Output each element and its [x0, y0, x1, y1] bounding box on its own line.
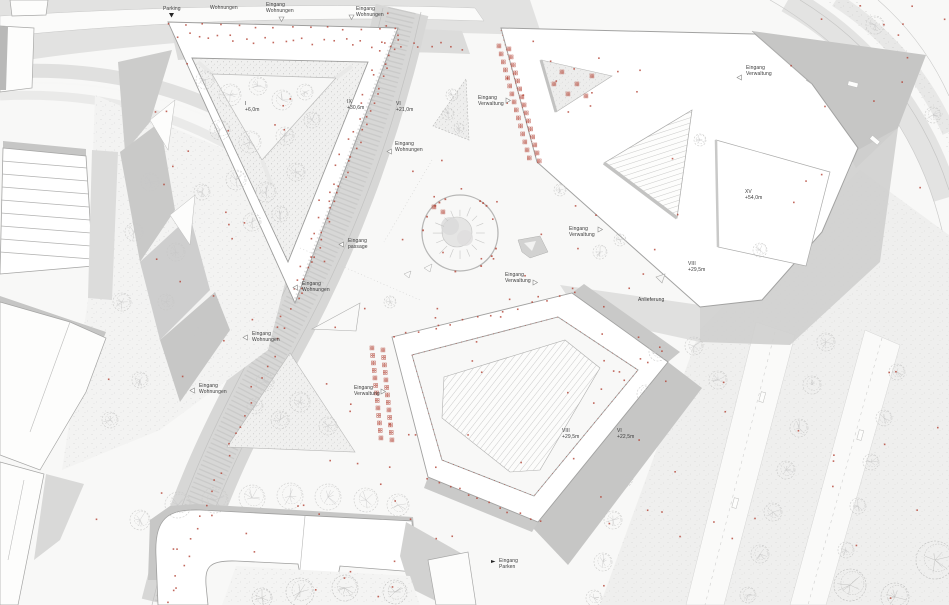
window-symbol [390, 438, 394, 442]
red-dot [598, 57, 600, 59]
red-dot [379, 28, 381, 30]
window-symbol [523, 140, 527, 144]
red-dot [619, 371, 621, 373]
red-dot [280, 316, 282, 318]
red-dot [156, 258, 158, 260]
red-dot [394, 500, 396, 502]
red-dot [590, 105, 592, 107]
red-dot [890, 597, 892, 599]
tree-icon [354, 488, 378, 512]
red-dot [301, 37, 303, 39]
red-dot [603, 360, 605, 362]
window-symbol [372, 361, 376, 365]
red-dot [480, 265, 482, 267]
red-dot [444, 198, 446, 200]
red-dot [329, 460, 331, 462]
red-dot [541, 234, 543, 236]
red-dot [264, 37, 266, 39]
red-dot [661, 350, 663, 352]
red-dot [493, 258, 495, 260]
red-dot [435, 538, 437, 540]
red-dot [394, 49, 396, 51]
red-dot [303, 504, 305, 506]
red-dot [283, 129, 285, 131]
entrance-marker-icon [491, 560, 496, 567]
red-dot [274, 356, 276, 358]
red-dot [390, 46, 392, 48]
red-dot [286, 41, 288, 43]
red-dot [221, 472, 223, 474]
red-dot [108, 378, 110, 380]
red-dot [661, 511, 663, 513]
label-text: Eingangpassage [348, 238, 368, 250]
red-dot [385, 63, 387, 65]
red-dot [213, 479, 215, 481]
entrance-marker-icon [381, 389, 386, 394]
red-dot [187, 150, 189, 152]
red-dot [239, 426, 241, 428]
entrance-marker-icon [533, 280, 538, 285]
red-dot [199, 36, 201, 38]
red-dot [462, 49, 464, 51]
window-symbol [503, 68, 507, 72]
red-dot [550, 60, 552, 62]
red-dot [672, 158, 674, 160]
red-dot [246, 38, 248, 40]
red-dot [349, 411, 351, 413]
red-dot [189, 556, 191, 558]
label-text: Wohnungen [210, 5, 238, 11]
red-dot [177, 36, 179, 38]
red-dot [441, 160, 443, 162]
red-dot [600, 496, 602, 498]
red-dot [335, 164, 337, 166]
window-symbol [512, 100, 516, 104]
red-dot [911, 5, 913, 7]
red-dot [371, 47, 373, 49]
red-dot [244, 415, 246, 417]
red-dot [361, 129, 363, 131]
red-dot [451, 535, 453, 537]
red-dot [190, 538, 192, 540]
red-dot [461, 188, 463, 190]
red-dot [337, 185, 339, 187]
red-dot [439, 482, 441, 484]
window-symbol [385, 386, 389, 390]
red-dot [174, 575, 176, 577]
red-dot [647, 509, 649, 511]
plan-label-height-viii-s: VIII+29,5m [562, 428, 579, 440]
red-dot [713, 521, 715, 523]
red-dot [433, 196, 435, 198]
red-dot [231, 238, 233, 240]
red-dot [255, 27, 257, 29]
red-dot [902, 23, 904, 25]
red-dot [182, 376, 184, 378]
red-dot [229, 455, 231, 457]
red-dot [155, 111, 157, 113]
red-dot [197, 528, 199, 530]
red-dot [361, 102, 363, 104]
red-dot [385, 25, 387, 27]
red-dot [244, 222, 246, 224]
red-dot [250, 386, 252, 388]
red-dot [297, 279, 299, 281]
red-dot [405, 332, 407, 334]
tree-icon [315, 484, 341, 510]
red-dot [321, 239, 323, 241]
red-dot [723, 382, 725, 384]
red-dot [384, 42, 386, 44]
red-dot [272, 42, 274, 44]
red-dot [442, 252, 444, 254]
red-dot [488, 502, 490, 504]
red-dot [96, 519, 98, 521]
red-dot [311, 44, 313, 46]
red-dot [731, 538, 733, 540]
red-dot [476, 341, 478, 343]
red-dot [189, 32, 191, 34]
red-dot [572, 288, 574, 290]
red-dot [435, 466, 437, 468]
red-dot [373, 74, 375, 76]
red-dot [450, 486, 452, 488]
red-dot [342, 29, 344, 31]
red-dot [540, 520, 542, 522]
red-dot [311, 238, 313, 240]
red-dot [298, 298, 300, 300]
window-symbol [499, 52, 503, 56]
red-dot [496, 201, 498, 203]
red-dot [491, 255, 493, 257]
tree-icon [277, 483, 303, 509]
red-dot [537, 296, 539, 298]
label-text: EingangVerwaltung [569, 226, 595, 238]
red-dot [603, 585, 605, 587]
red-dot [220, 24, 222, 26]
plan-label-eingang-verwaltung-c2: EingangVerwaltung [505, 272, 538, 285]
window-symbol [377, 414, 381, 418]
red-dot [377, 596, 379, 598]
red-dot [573, 458, 575, 460]
red-dot [348, 138, 350, 140]
tree-icon [594, 553, 612, 571]
red-dot [888, 372, 890, 374]
red-dot [235, 432, 237, 434]
red-dot [677, 214, 679, 216]
entrance-marker-icon [506, 98, 511, 103]
red-dot [311, 261, 313, 263]
red-dot [344, 577, 346, 579]
red-dot [379, 50, 381, 52]
red-dot [329, 192, 331, 194]
red-dot [422, 229, 424, 231]
red-dot [261, 377, 263, 379]
red-dot [623, 379, 625, 381]
red-dot [208, 37, 210, 39]
tree-icon [384, 296, 396, 308]
red-dot [509, 299, 511, 301]
label-text: Parking [163, 6, 181, 12]
red-dot [277, 326, 279, 328]
red-dot [389, 466, 391, 468]
red-dot [327, 218, 329, 220]
red-dot [402, 239, 404, 241]
label-text: EingangVerwaltung [505, 272, 531, 284]
red-dot [318, 199, 320, 201]
red-dot [356, 148, 358, 150]
window-symbol [384, 378, 388, 382]
red-dot [567, 392, 569, 394]
red-dot [832, 486, 834, 488]
window-symbol [378, 421, 382, 425]
window-symbol [516, 116, 520, 120]
red-dot [643, 273, 645, 275]
red-dot [821, 18, 823, 20]
red-dot [659, 346, 661, 348]
red-dot [603, 306, 605, 308]
red-dot [348, 160, 350, 162]
red-dot [329, 200, 331, 202]
red-dot [315, 589, 317, 591]
red-dot [251, 402, 253, 404]
red-dot [229, 34, 231, 36]
plan-label-eingang-verwaltung-nw: EingangVerwaltung [478, 95, 511, 107]
red-dot [318, 217, 320, 219]
red-dot [223, 340, 225, 342]
red-dot [333, 40, 335, 42]
red-dot [397, 35, 399, 37]
entrance-marker-icon [598, 227, 603, 232]
red-dot [575, 205, 577, 207]
window-symbol [373, 376, 377, 380]
red-dot [647, 362, 649, 364]
red-dot [439, 202, 441, 204]
red-dot [166, 111, 168, 113]
red-dot [556, 80, 558, 82]
window-symbol [525, 148, 529, 152]
red-dot [568, 111, 570, 113]
red-dot [381, 41, 383, 43]
site-plan: ParkingWohnungenEingangWohnungenEingangW… [0, 0, 949, 605]
window-symbol [382, 356, 386, 360]
window-symbol [501, 60, 505, 64]
red-dot [254, 551, 256, 553]
red-dot [239, 25, 241, 27]
red-dot [459, 488, 461, 490]
red-dot [161, 492, 163, 494]
red-dot [292, 26, 294, 28]
red-dot [559, 295, 561, 297]
red-dot [821, 174, 823, 176]
red-dot [873, 100, 875, 102]
red-dot [359, 40, 361, 42]
red-dot [601, 333, 603, 335]
red-dot [601, 388, 603, 390]
red-dot [481, 258, 483, 260]
red-dot [412, 171, 414, 173]
red-dot [334, 327, 336, 329]
red-dot [665, 380, 667, 382]
window-symbol [378, 429, 382, 433]
red-dot [380, 483, 382, 485]
red-dot [185, 24, 187, 26]
red-dot [313, 256, 315, 258]
red-dot [274, 124, 276, 126]
red-dot [499, 507, 501, 509]
red-dot [232, 40, 234, 42]
red-dot [724, 411, 726, 413]
plan-label-eingang-parken: EingangParken [491, 558, 518, 570]
red-dot [353, 131, 355, 133]
red-dot [805, 180, 807, 182]
red-dot [338, 154, 340, 156]
red-dot [378, 88, 380, 90]
red-dot [350, 403, 352, 405]
red-dot [462, 319, 464, 321]
red-dot [679, 536, 681, 538]
red-dot [417, 46, 419, 48]
red-dot [437, 308, 439, 310]
red-dot [482, 202, 484, 204]
red-dot [313, 233, 315, 235]
red-dot [674, 471, 676, 473]
red-dot [297, 505, 299, 507]
red-dot [319, 247, 321, 249]
window-symbol [383, 371, 387, 375]
red-dot [387, 13, 389, 15]
red-dot [573, 68, 575, 70]
red-dot [361, 29, 363, 31]
red-dot [790, 65, 792, 67]
red-dot [639, 69, 641, 71]
red-dot [944, 19, 946, 21]
red-dot [246, 533, 248, 535]
red-dot [613, 370, 615, 372]
window-symbol [519, 124, 523, 128]
window-symbol [386, 393, 390, 397]
red-dot [349, 156, 351, 158]
red-dot [481, 371, 483, 373]
red-dot [532, 41, 534, 43]
red-dot [394, 28, 396, 30]
window-symbol [386, 401, 390, 405]
label-text: EingangVerwaltung [478, 95, 504, 107]
plan-label-eingang-verwaltung-c1: EingangVerwaltung [569, 226, 603, 238]
red-dot [492, 218, 494, 220]
window-symbol [521, 132, 525, 136]
red-dot [303, 278, 305, 280]
red-dot [916, 509, 918, 511]
window-symbol [379, 436, 383, 440]
red-dot [326, 383, 328, 385]
red-dot [467, 434, 469, 436]
window-symbol [370, 346, 374, 350]
red-dot [502, 311, 504, 313]
red-dot [856, 545, 858, 547]
red-dot [426, 216, 428, 218]
red-dot [393, 336, 395, 338]
red-dot [336, 192, 338, 194]
red-dot [530, 518, 532, 520]
red-dot [754, 518, 756, 520]
red-dot [179, 281, 181, 283]
red-dot [366, 116, 368, 118]
red-dot [228, 443, 230, 445]
red-dot [654, 249, 656, 251]
red-dot [359, 118, 361, 120]
label-text: EingangWohnungen [395, 141, 423, 153]
red-dot [438, 325, 440, 327]
window-symbol [441, 210, 445, 214]
red-dot [638, 336, 640, 338]
red-dot [479, 200, 481, 202]
red-dot [392, 586, 394, 588]
red-dot [595, 214, 597, 216]
label-text: EingangWohnungen [199, 383, 227, 395]
red-dot [383, 75, 385, 77]
red-dot [388, 55, 390, 57]
red-dot [173, 548, 175, 550]
red-dot [520, 462, 522, 464]
window-symbol [383, 363, 387, 367]
plan-label-eingang-verwaltung-s: EingangVerwaltung [354, 385, 386, 397]
red-dot [397, 39, 399, 41]
red-dot [290, 98, 292, 100]
red-dot [577, 248, 579, 250]
red-dot [252, 319, 254, 321]
red-dot [490, 315, 492, 317]
red-dot [206, 505, 208, 507]
tree-icon [387, 494, 409, 516]
red-dot [211, 491, 213, 493]
tree-icon [593, 245, 607, 259]
red-dot [413, 42, 415, 44]
red-dot [520, 512, 522, 514]
window-symbol [514, 108, 518, 112]
red-dot [833, 454, 835, 456]
red-dot [308, 267, 310, 269]
red-dot [440, 42, 442, 44]
red-dot [310, 26, 312, 28]
red-dot [183, 565, 185, 567]
window-symbol [372, 369, 376, 373]
label-text: VIII+29,5m [562, 428, 579, 440]
red-dot [793, 202, 795, 204]
red-dot [546, 300, 548, 302]
red-dot [410, 518, 412, 520]
red-dot [449, 324, 451, 326]
red-dot [895, 371, 897, 373]
red-dot [377, 93, 379, 95]
tree-icon [130, 510, 150, 530]
red-dot [919, 187, 921, 189]
red-dot [173, 590, 175, 592]
red-dot [362, 94, 364, 96]
window-symbol [508, 84, 512, 88]
red-dot [329, 221, 331, 223]
red-dot [323, 39, 325, 41]
red-dot [435, 317, 437, 319]
red-dot [290, 308, 292, 310]
window-symbol [389, 431, 393, 435]
red-dot [506, 512, 508, 514]
tree-icon [554, 184, 566, 196]
red-dot [386, 67, 388, 69]
window-symbol [497, 44, 501, 48]
red-dot [517, 308, 519, 310]
red-dot [199, 515, 201, 517]
